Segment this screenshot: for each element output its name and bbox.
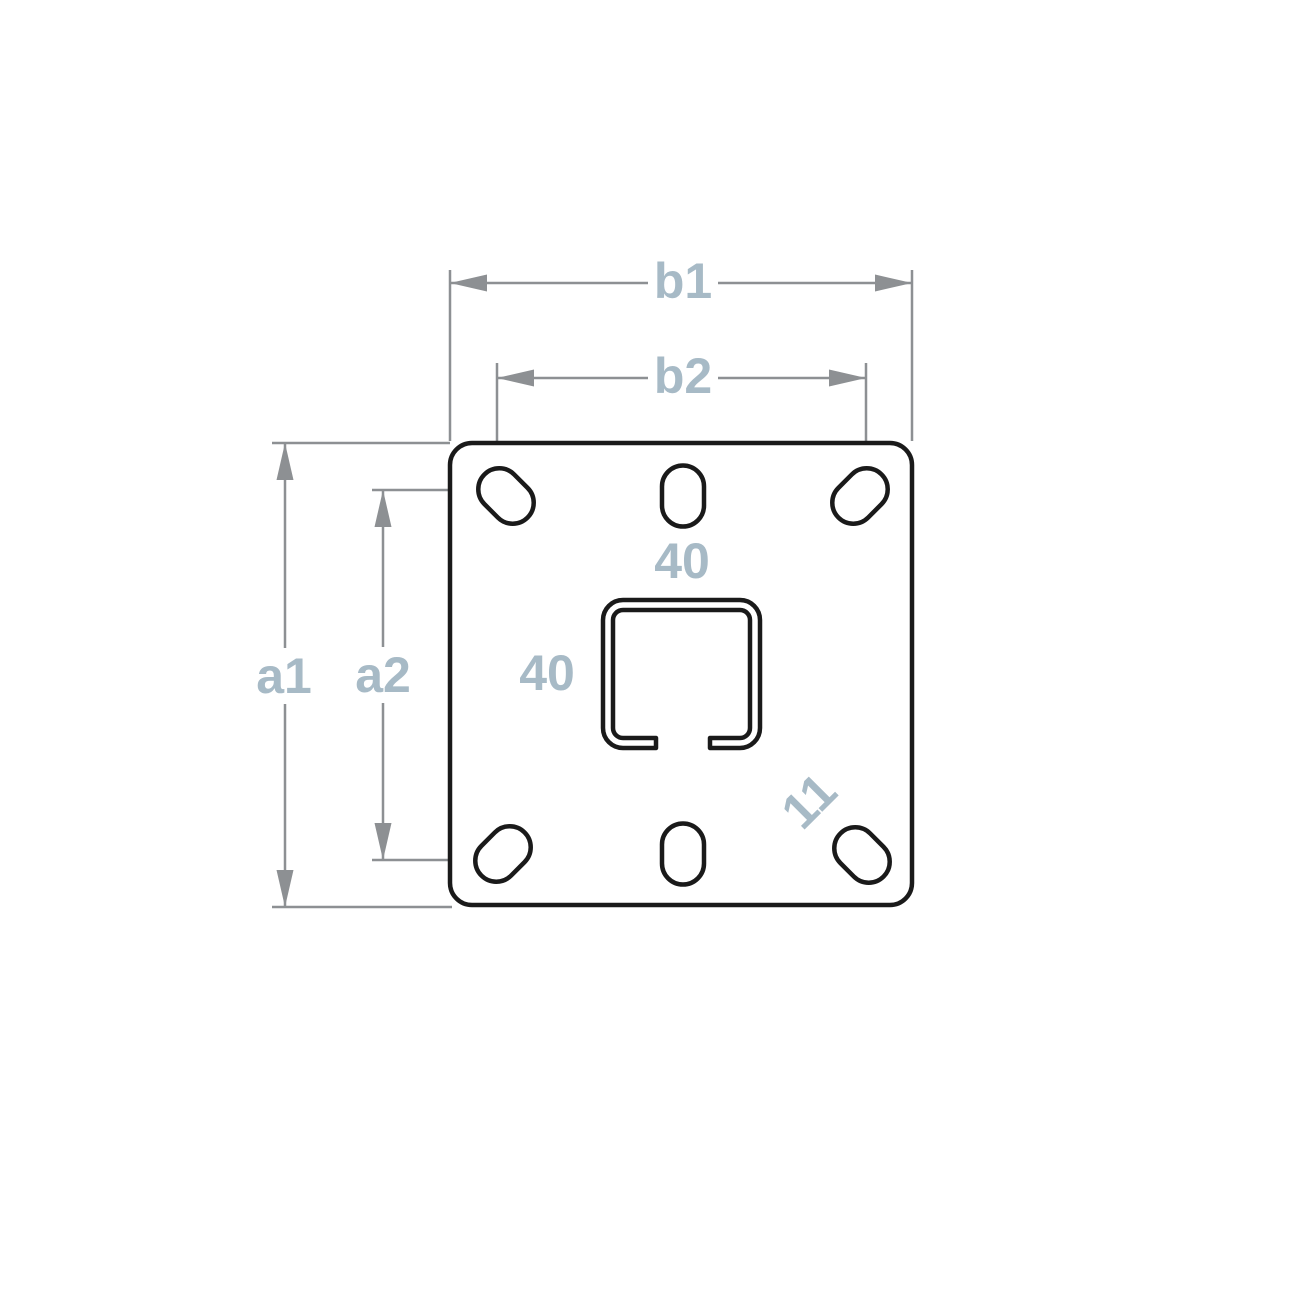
label-b1: b1 bbox=[654, 253, 712, 309]
label-b2: b2 bbox=[654, 348, 712, 404]
arrow-a1-top bbox=[277, 443, 294, 480]
technical-drawing-canvas: b1 b2 a1 a2 40 40 11 bbox=[0, 0, 1299, 1299]
arrow-b2-right bbox=[829, 370, 866, 387]
label-a1: a1 bbox=[256, 648, 312, 704]
arrow-a1-bottom bbox=[277, 870, 294, 907]
label-tube-height: 40 bbox=[519, 645, 575, 701]
arrow-b1-left bbox=[450, 275, 487, 292]
arrow-b2-left bbox=[497, 370, 534, 387]
drawing-page: b1 b2 a1 a2 40 40 11 bbox=[0, 0, 1299, 1299]
arrow-a2-top bbox=[375, 490, 392, 527]
label-tube-width: 40 bbox=[654, 533, 710, 589]
label-a2: a2 bbox=[355, 647, 411, 703]
arrow-b1-right bbox=[875, 275, 912, 292]
arrow-a2-bottom bbox=[375, 823, 392, 860]
